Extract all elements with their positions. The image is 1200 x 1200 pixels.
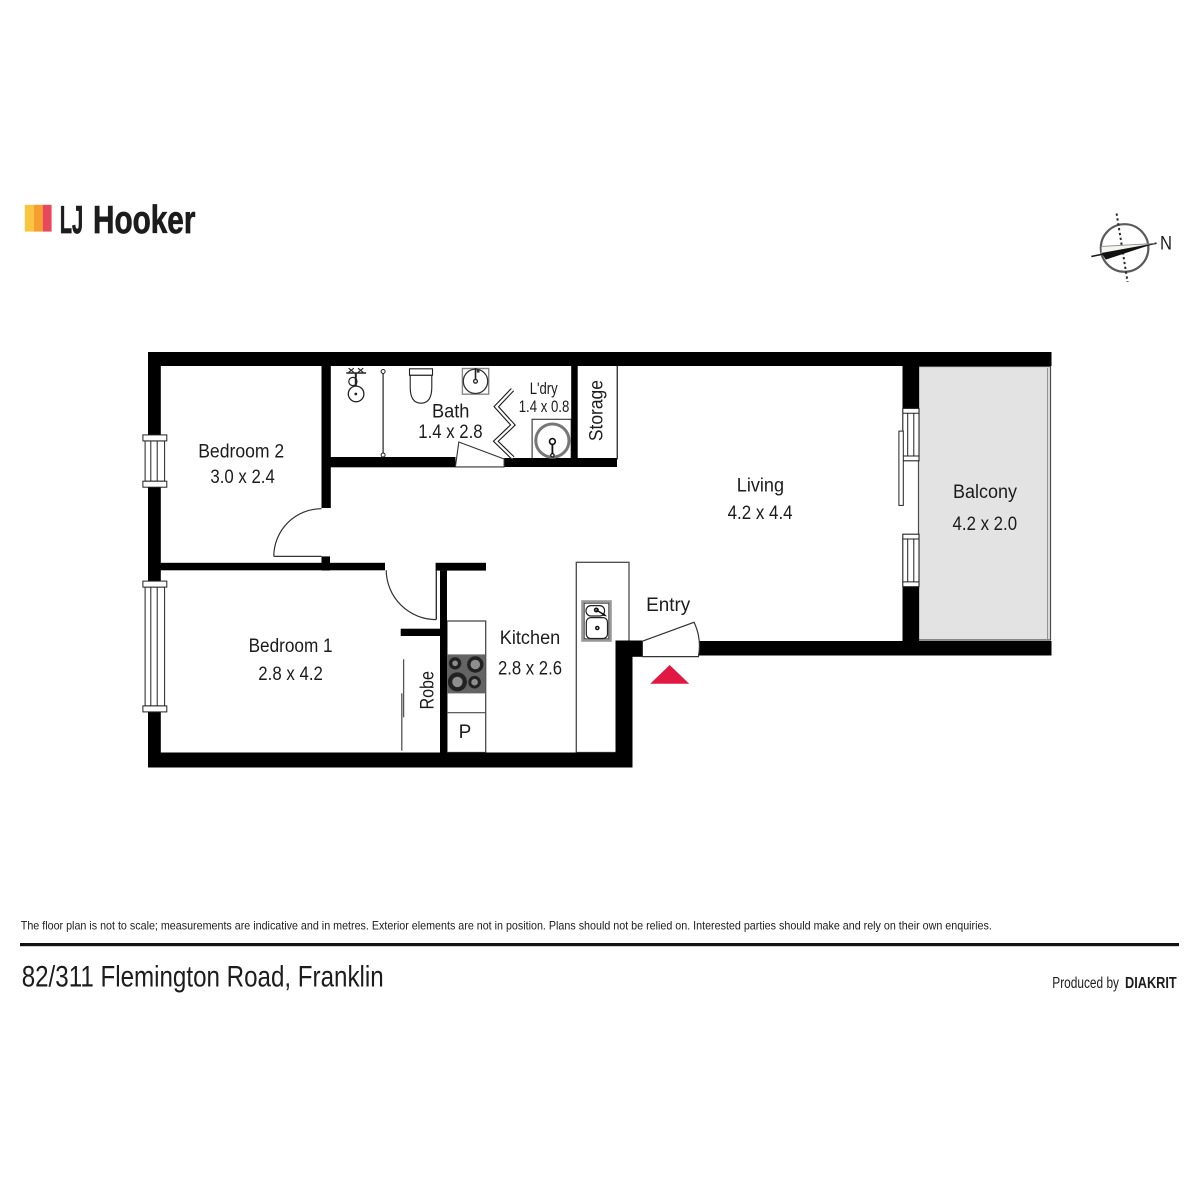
svg-text:3.0 x 2.4: 3.0 x 2.4 (210, 467, 275, 488)
svg-text:L'dry: L'dry (530, 380, 559, 398)
svg-text:N: N (1160, 233, 1172, 254)
svg-text:Bedroom 2: Bedroom 2 (198, 441, 284, 462)
svg-text:The floor plan is not to scale: The floor plan is not to scale; measurem… (21, 919, 992, 933)
svg-text:1.4 x 2.8: 1.4 x 2.8 (418, 422, 482, 443)
svg-text:Bedroom 1: Bedroom 1 (249, 636, 333, 657)
svg-text:2.8 x 4.2: 2.8 x 4.2 (258, 664, 323, 685)
svg-text:P: P (459, 722, 472, 743)
svg-text:4.2 x 4.4: 4.2 x 4.4 (728, 503, 793, 524)
svg-text:2.8 x 2.6: 2.8 x 2.6 (498, 659, 562, 680)
svg-text:Entry: Entry (646, 595, 691, 616)
svg-text:Robe: Robe (417, 671, 438, 710)
svg-text:82/311 Flemington Road, Frankl: 82/311 Flemington Road, Franklin (22, 961, 384, 994)
svg-text:Storage: Storage (587, 380, 608, 441)
svg-text:DIAKRIT: DIAKRIT (1125, 975, 1177, 992)
svg-text:4.2 x 2.0: 4.2 x 2.0 (953, 514, 1018, 535)
svg-text:Balcony: Balcony (953, 482, 1017, 503)
svg-text:Living: Living (737, 475, 784, 496)
svg-text:Bath: Bath (432, 401, 470, 422)
svg-text:LJHooker: LJHooker (60, 199, 196, 242)
svg-text:1.4 x 0.8: 1.4 x 0.8 (519, 398, 570, 416)
svg-text:Produced by: Produced by (1052, 975, 1119, 992)
svg-text:Kitchen: Kitchen (500, 628, 561, 649)
